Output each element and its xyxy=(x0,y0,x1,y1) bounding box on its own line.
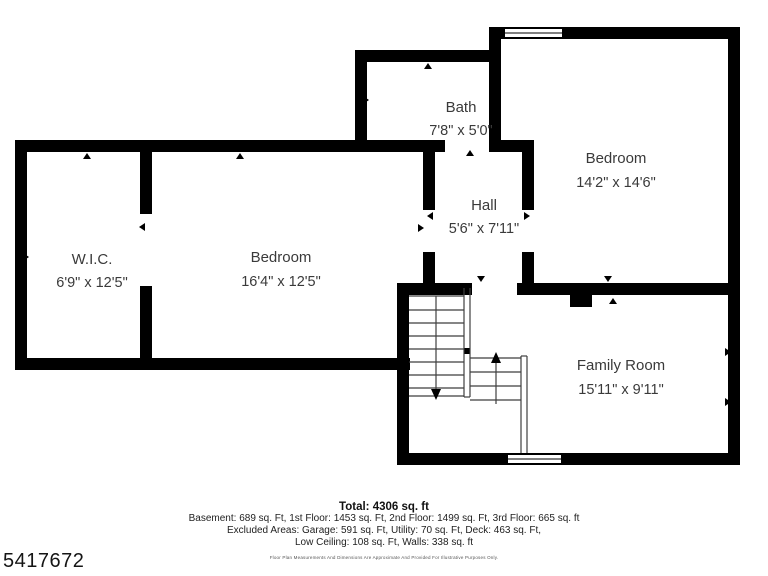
wall-wic-divider-lower xyxy=(140,286,152,358)
wall-hall-top-connector xyxy=(489,140,534,152)
stair-down-arrow-icon xyxy=(431,389,441,400)
wall-bottom-left-part xyxy=(397,453,507,465)
summary-floors: Basement: 689 sq. Ft, 1st Floor: 1453 sq… xyxy=(0,513,768,525)
room-label-hall-name: Hall xyxy=(471,197,497,214)
floor-plan-page: Bath 7'8" x 5'0" Bedroom 14'2" x 14'6" H… xyxy=(0,0,768,576)
room-label-familyroom-name: Family Room xyxy=(577,357,665,374)
room-label-bedroom-tr-name: Bedroom xyxy=(586,150,647,167)
summary-disclaimer: Floor Plan Measurements And Dimensions A… xyxy=(0,553,768,563)
room-label-wic-dims: 6'9" x 12'5" xyxy=(56,275,127,291)
door-marker-icon xyxy=(609,298,617,304)
room-label-bath-name: Bath xyxy=(446,99,477,116)
wall-right-outer xyxy=(728,27,740,465)
staircase xyxy=(409,288,527,453)
watermark-id: 5417672 xyxy=(3,550,84,573)
door-markers xyxy=(23,63,731,406)
door-marker-icon xyxy=(424,63,432,69)
door-marker-icon xyxy=(83,153,91,159)
door-marker-icon xyxy=(139,223,145,231)
summary-excluded: Excluded Areas: Garage: 591 sq. Ft, Util… xyxy=(0,525,768,537)
floor-plan: Bath 7'8" x 5'0" Bedroom 14'2" x 14'6" H… xyxy=(0,0,768,576)
window-top xyxy=(504,28,563,38)
door-marker-icon xyxy=(604,276,612,282)
wall-hall-right-upper xyxy=(522,152,534,210)
stair-newel-post xyxy=(465,348,470,354)
room-label-bath-dims: 7'8" x 5'0" xyxy=(429,123,492,139)
wall-bottom-right-part xyxy=(562,453,740,465)
wall-familyroom-top xyxy=(517,283,740,295)
door-marker-icon xyxy=(524,212,530,220)
wall-bath-top xyxy=(355,50,501,62)
summary-lowceiling: Low Ceiling: 108 sq. Ft, Walls: 338 sq. … xyxy=(0,537,768,549)
wall-left-rect-top xyxy=(15,140,435,152)
window-bottom xyxy=(507,454,562,464)
windows xyxy=(504,28,563,464)
door-marker-icon xyxy=(427,212,433,220)
chimney-stub xyxy=(570,295,592,307)
room-label-bedroom-c-dims: 16'4" x 12'5" xyxy=(241,274,321,290)
wall-hall-left-upper xyxy=(423,152,435,210)
walls xyxy=(15,27,740,465)
room-label-familyroom-dims: 15'11" x 9'11" xyxy=(578,382,663,398)
door-marker-icon xyxy=(236,153,244,159)
wall-stair-left xyxy=(397,283,409,465)
door-marker-icon xyxy=(466,150,474,156)
room-label-wic-name: W.I.C. xyxy=(72,251,113,268)
room-label-hall-dims: 5'6" x 7'11" xyxy=(449,221,519,237)
wall-wic-divider-upper xyxy=(140,152,152,214)
summary-total: Total: 4306 sq. ft xyxy=(0,501,768,513)
summary-block: Total: 4306 sq. ft Basement: 689 sq. Ft,… xyxy=(0,501,768,563)
room-label-bedroom-tr-dims: 14'2" x 14'6" xyxy=(576,175,656,191)
door-marker-icon xyxy=(477,276,485,282)
door-marker-icon xyxy=(418,224,424,232)
wall-hall-left-lower xyxy=(423,252,435,283)
room-label-bedroom-c-name: Bedroom xyxy=(251,249,312,266)
wall-left-rect-bottom xyxy=(15,358,410,370)
